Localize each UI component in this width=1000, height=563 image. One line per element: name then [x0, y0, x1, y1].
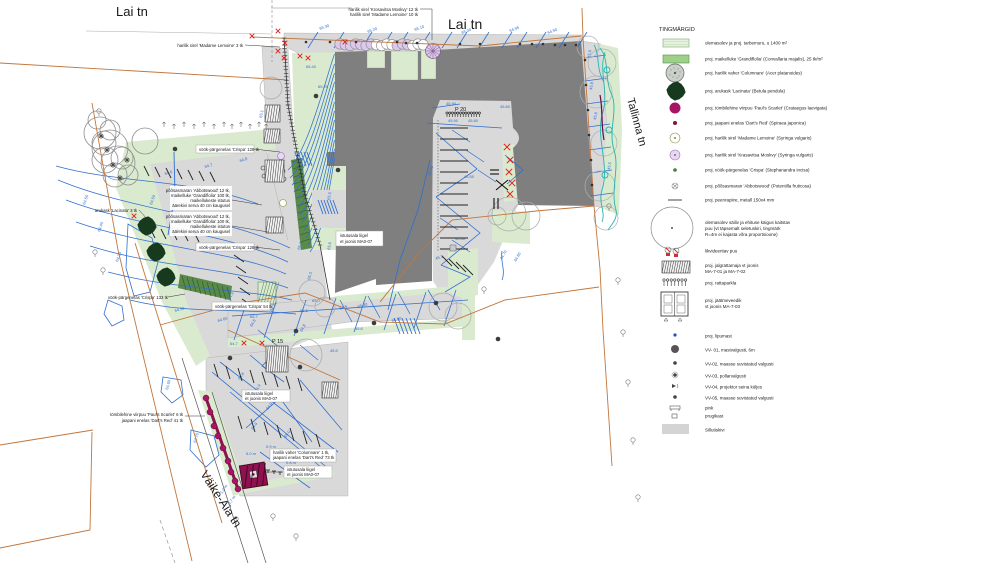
svg-text:proj. harilik sirel 'Krasavits: proj. harilik sirel 'Krasavitsa Moskvy' …	[705, 153, 813, 158]
svg-text:65.40: 65.40	[306, 64, 317, 69]
svg-text:proj. arukask 'Lacinata' (Betu: proj. arukask 'Lacinata' (Betula pendula…	[705, 89, 786, 94]
svg-text:65.1: 65.1	[258, 109, 264, 118]
svg-text:44.60: 44.60	[513, 251, 523, 263]
svg-text:Lai tn: Lai tn	[116, 4, 148, 19]
svg-text:Tallinna tn: Tallinna tn	[624, 97, 648, 148]
svg-text:äärekivi serva 40 cm kaugusel: äärekivi serva 40 cm kaugusel	[172, 203, 230, 208]
svg-text:64.7: 64.7	[230, 341, 239, 346]
svg-text:arukask 'Lacinata' 3 tk: arukask 'Lacinata' 3 tk	[95, 208, 138, 213]
svg-text:65.10: 65.10	[414, 24, 426, 32]
svg-text:65.30: 65.30	[319, 23, 331, 31]
svg-text:pink: pink	[705, 406, 714, 411]
svg-text:45.50: 45.50	[464, 174, 475, 179]
svg-text:VV-03, pollarvalgusti: VV-03, pollarvalgusti	[705, 374, 746, 379]
svg-text:et joonis MA0-07: et joonis MA0-07	[245, 396, 278, 401]
svg-text:proj. rattaparkla: proj. rattaparkla	[705, 281, 737, 286]
svg-text:45.80: 45.80	[500, 104, 511, 109]
svg-text:45.5: 45.5	[330, 348, 339, 353]
svg-text:VV-05, maasse suvistatud valgu: VV-05, maasse suvistatud valgusti	[705, 396, 774, 401]
svg-text:65.20: 65.20	[367, 26, 379, 34]
svg-text:VV-02, maasse suvistatud valgu: VV-02, maasse suvistatud valgusti	[705, 362, 774, 367]
svg-text:TINGMÄRGID: TINGMÄRGID	[659, 26, 695, 33]
svg-text:64.95: 64.95	[509, 25, 521, 33]
svg-text:proj. jäätmeveedik: proj. jäätmeveedik	[705, 298, 742, 303]
svg-text:65.6: 65.6	[300, 308, 309, 313]
svg-text:P 20: P 20	[455, 107, 466, 113]
svg-text:proj. jaapani enelas 'Dart's R: proj. jaapani enelas 'Dart's Red' (Spira…	[705, 121, 806, 126]
svg-text:R=4m ei kajasta võra proportsi: R=4m ei kajasta võra proportsioone)	[705, 232, 778, 237]
svg-text:proj. peenrapiire, metall 150x: proj. peenrapiire, metall 150x4 mm	[705, 198, 775, 203]
svg-text:vöök-pärgenelas 'Crispa' 128 t: vöök-pärgenelas 'Crispa' 128 tk	[199, 245, 260, 250]
svg-text:45.80: 45.80	[468, 118, 479, 123]
svg-text:prugikast: prugikast	[705, 414, 724, 419]
svg-text:proj. jalgrattamaja vt joonis: proj. jalgrattamaja vt joonis	[705, 263, 759, 268]
svg-text:et joonis MA0-07: et joonis MA0-07	[287, 472, 320, 477]
svg-text:proj. lipumast: proj. lipumast	[705, 334, 733, 339]
svg-text:5.0 m: 5.0 m	[246, 451, 257, 456]
svg-text:proj. harilik sirel 'Madame Le: proj. harilik sirel 'Madame Lemoine' (Sy…	[705, 136, 812, 141]
svg-text:likvideeritav puu: likvideeritav puu	[705, 249, 738, 254]
svg-text:vöök-pärgenelas 'Crispa' 54 tk: vöök-pärgenelas 'Crispa' 54 tk	[215, 304, 273, 309]
svg-text:VV-04, projektor seina küljes: VV-04, projektor seina küljes	[705, 385, 763, 390]
svg-text:0.8 m: 0.8 m	[286, 460, 297, 465]
svg-text:Sillutiskivi: Sillutiskivi	[705, 428, 725, 433]
svg-text:65.20: 65.20	[318, 84, 329, 89]
svg-text:Lai tn: Lai tn	[448, 16, 482, 32]
svg-text:olemasolev ja proj. tarbemuru,: olemasolev ja proj. tarbemuru, u 1400 m²	[705, 41, 788, 46]
svg-text:64.60: 64.60	[164, 379, 172, 391]
svg-text:proj. põõsasmaran 'Abbotswood': proj. põõsasmaran 'Abbotswood' (Potentil…	[705, 184, 812, 189]
svg-text:istutusala liigel: istutusala liigel	[340, 233, 368, 238]
svg-text:äärekivi serva 40 cm kaugusel: äärekivi serva 40 cm kaugusel	[172, 229, 230, 234]
svg-text:64.70: 64.70	[192, 432, 200, 444]
svg-text:64.50: 64.50	[81, 193, 89, 205]
svg-text:vöök-pärgenelas 'Crispa' 133 t: vöök-pärgenelas 'Crispa' 133 tk	[108, 295, 169, 300]
svg-text:45.90: 45.90	[448, 118, 459, 123]
svg-text:jaapani enelas 'Dart's Red' 73: jaapani enelas 'Dart's Red' 73 tk	[272, 455, 335, 460]
svg-text:44.70: 44.70	[499, 249, 509, 261]
svg-text:VV- 01, mastvalgusti, 6m: VV- 01, mastvalgusti, 6m	[705, 348, 755, 353]
svg-text:jaapani enelas 'Dart's Red' 41: jaapani enelas 'Dart's Red' 41 tk	[121, 418, 184, 423]
svg-text:puu (vt täpsemalt seletuskiri,: puu (vt täpsemalt seletuskiri, tingmärk	[705, 226, 781, 231]
svg-text:P 15: P 15	[272, 339, 283, 345]
svg-text:65.7: 65.7	[250, 314, 259, 319]
svg-text:proj. tömbilehine viirpuu 'Pau: proj. tömbilehine viirpuu 'Paul's Scarle…	[705, 106, 828, 111]
svg-text:proj. vöök-pärgenelas 'Crispa': proj. vöök-pärgenelas 'Crispa' (Stephana…	[705, 168, 810, 173]
svg-text:tömbilehine viirpuu 'Paul's Sc: tömbilehine viirpuu 'Paul's Scarlet' 6 t…	[110, 412, 184, 417]
svg-text:64.90: 64.90	[547, 27, 559, 35]
svg-text:proj. harilik vaher 'Columnare: proj. harilik vaher 'Columnare' (Acer pl…	[705, 71, 803, 76]
svg-text:45.6: 45.6	[355, 326, 364, 331]
svg-text:MA-7-01 ja MA-7-02: MA-7-01 ja MA-7-02	[705, 269, 746, 274]
svg-text:harilik sirel 'Madame Lemoine': harilik sirel 'Madame Lemoine' 10 tk	[350, 12, 419, 17]
svg-text:0.9 m: 0.9 m	[266, 444, 277, 449]
svg-text:harilik sirel 'Madame Lemoine': harilik sirel 'Madame Lemoine' 3 tk	[177, 43, 243, 48]
svg-text:et joonis MA0-07: et joonis MA0-07	[340, 239, 373, 244]
svg-text:proj. maikelluke 'Grandiflolia: proj. maikelluke 'Grandiflolia' (Convall…	[705, 57, 823, 62]
svg-text:45.90: 45.90	[446, 101, 457, 106]
svg-text:vt joonis MA-7-03: vt joonis MA-7-03	[705, 304, 741, 309]
svg-text:olemasolev säiliv ja ehituse k: olemasolev säiliv ja ehituse käigus kait…	[705, 220, 791, 225]
svg-text:vöök-pärgenelas 'Crispa' 128 t: vöök-pärgenelas 'Crispa' 128 tk	[199, 147, 260, 152]
